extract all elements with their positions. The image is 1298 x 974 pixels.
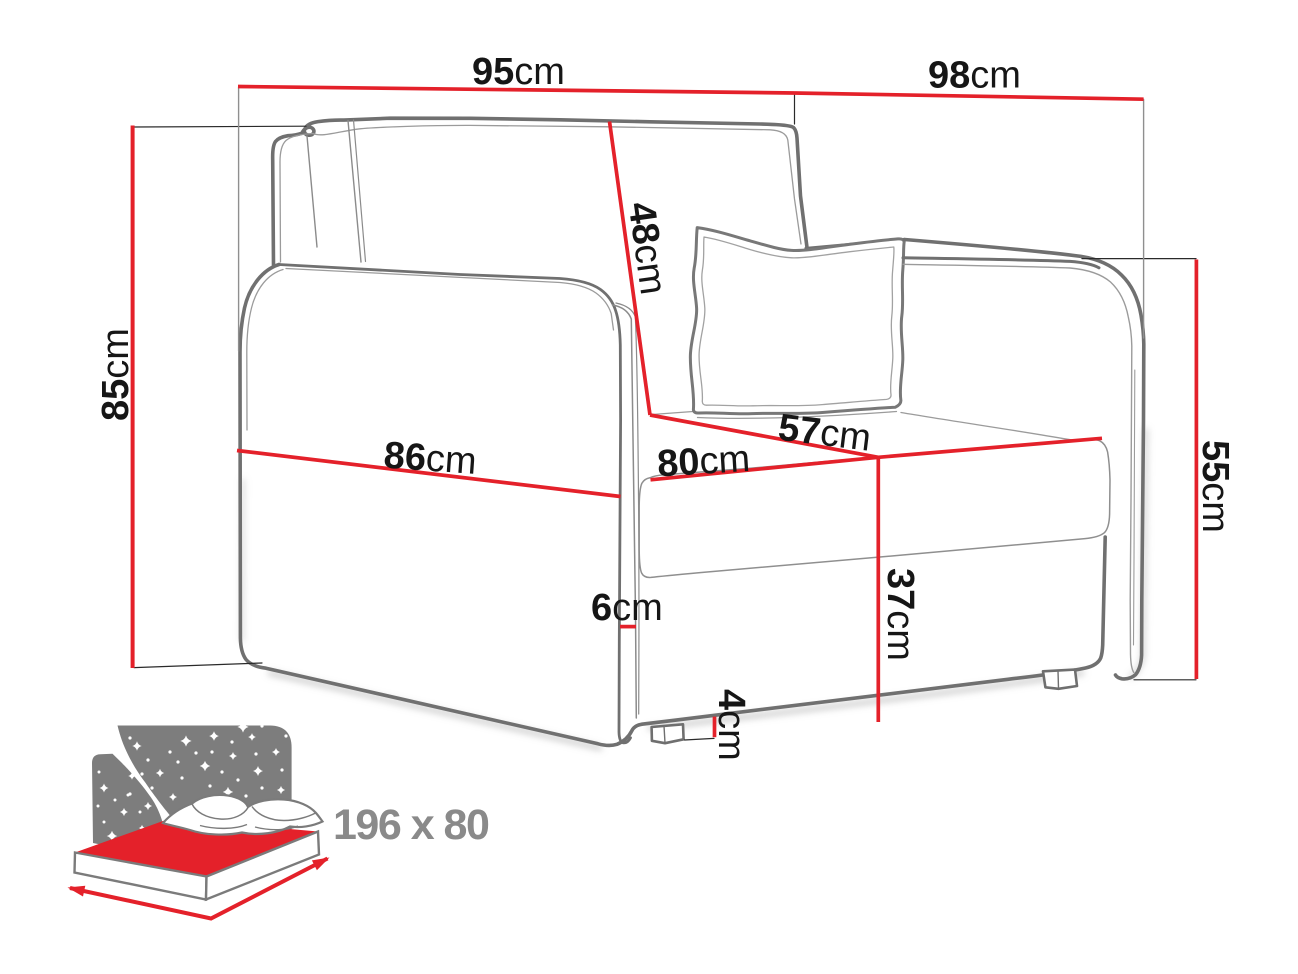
svg-text:196 x 80: 196 x 80 (333, 801, 489, 849)
svg-text:86cm: 86cm (382, 435, 478, 483)
svg-text:80cm: 80cm (656, 438, 751, 486)
svg-text:55cm: 55cm (1194, 440, 1236, 533)
svg-text:98cm: 98cm (928, 55, 1021, 97)
svg-text:95cm: 95cm (472, 51, 565, 93)
svg-text:85cm: 85cm (95, 328, 137, 421)
svg-text:6cm: 6cm (591, 587, 663, 629)
svg-text:4cm: 4cm (710, 689, 752, 761)
svg-text:37cm: 37cm (879, 568, 921, 661)
